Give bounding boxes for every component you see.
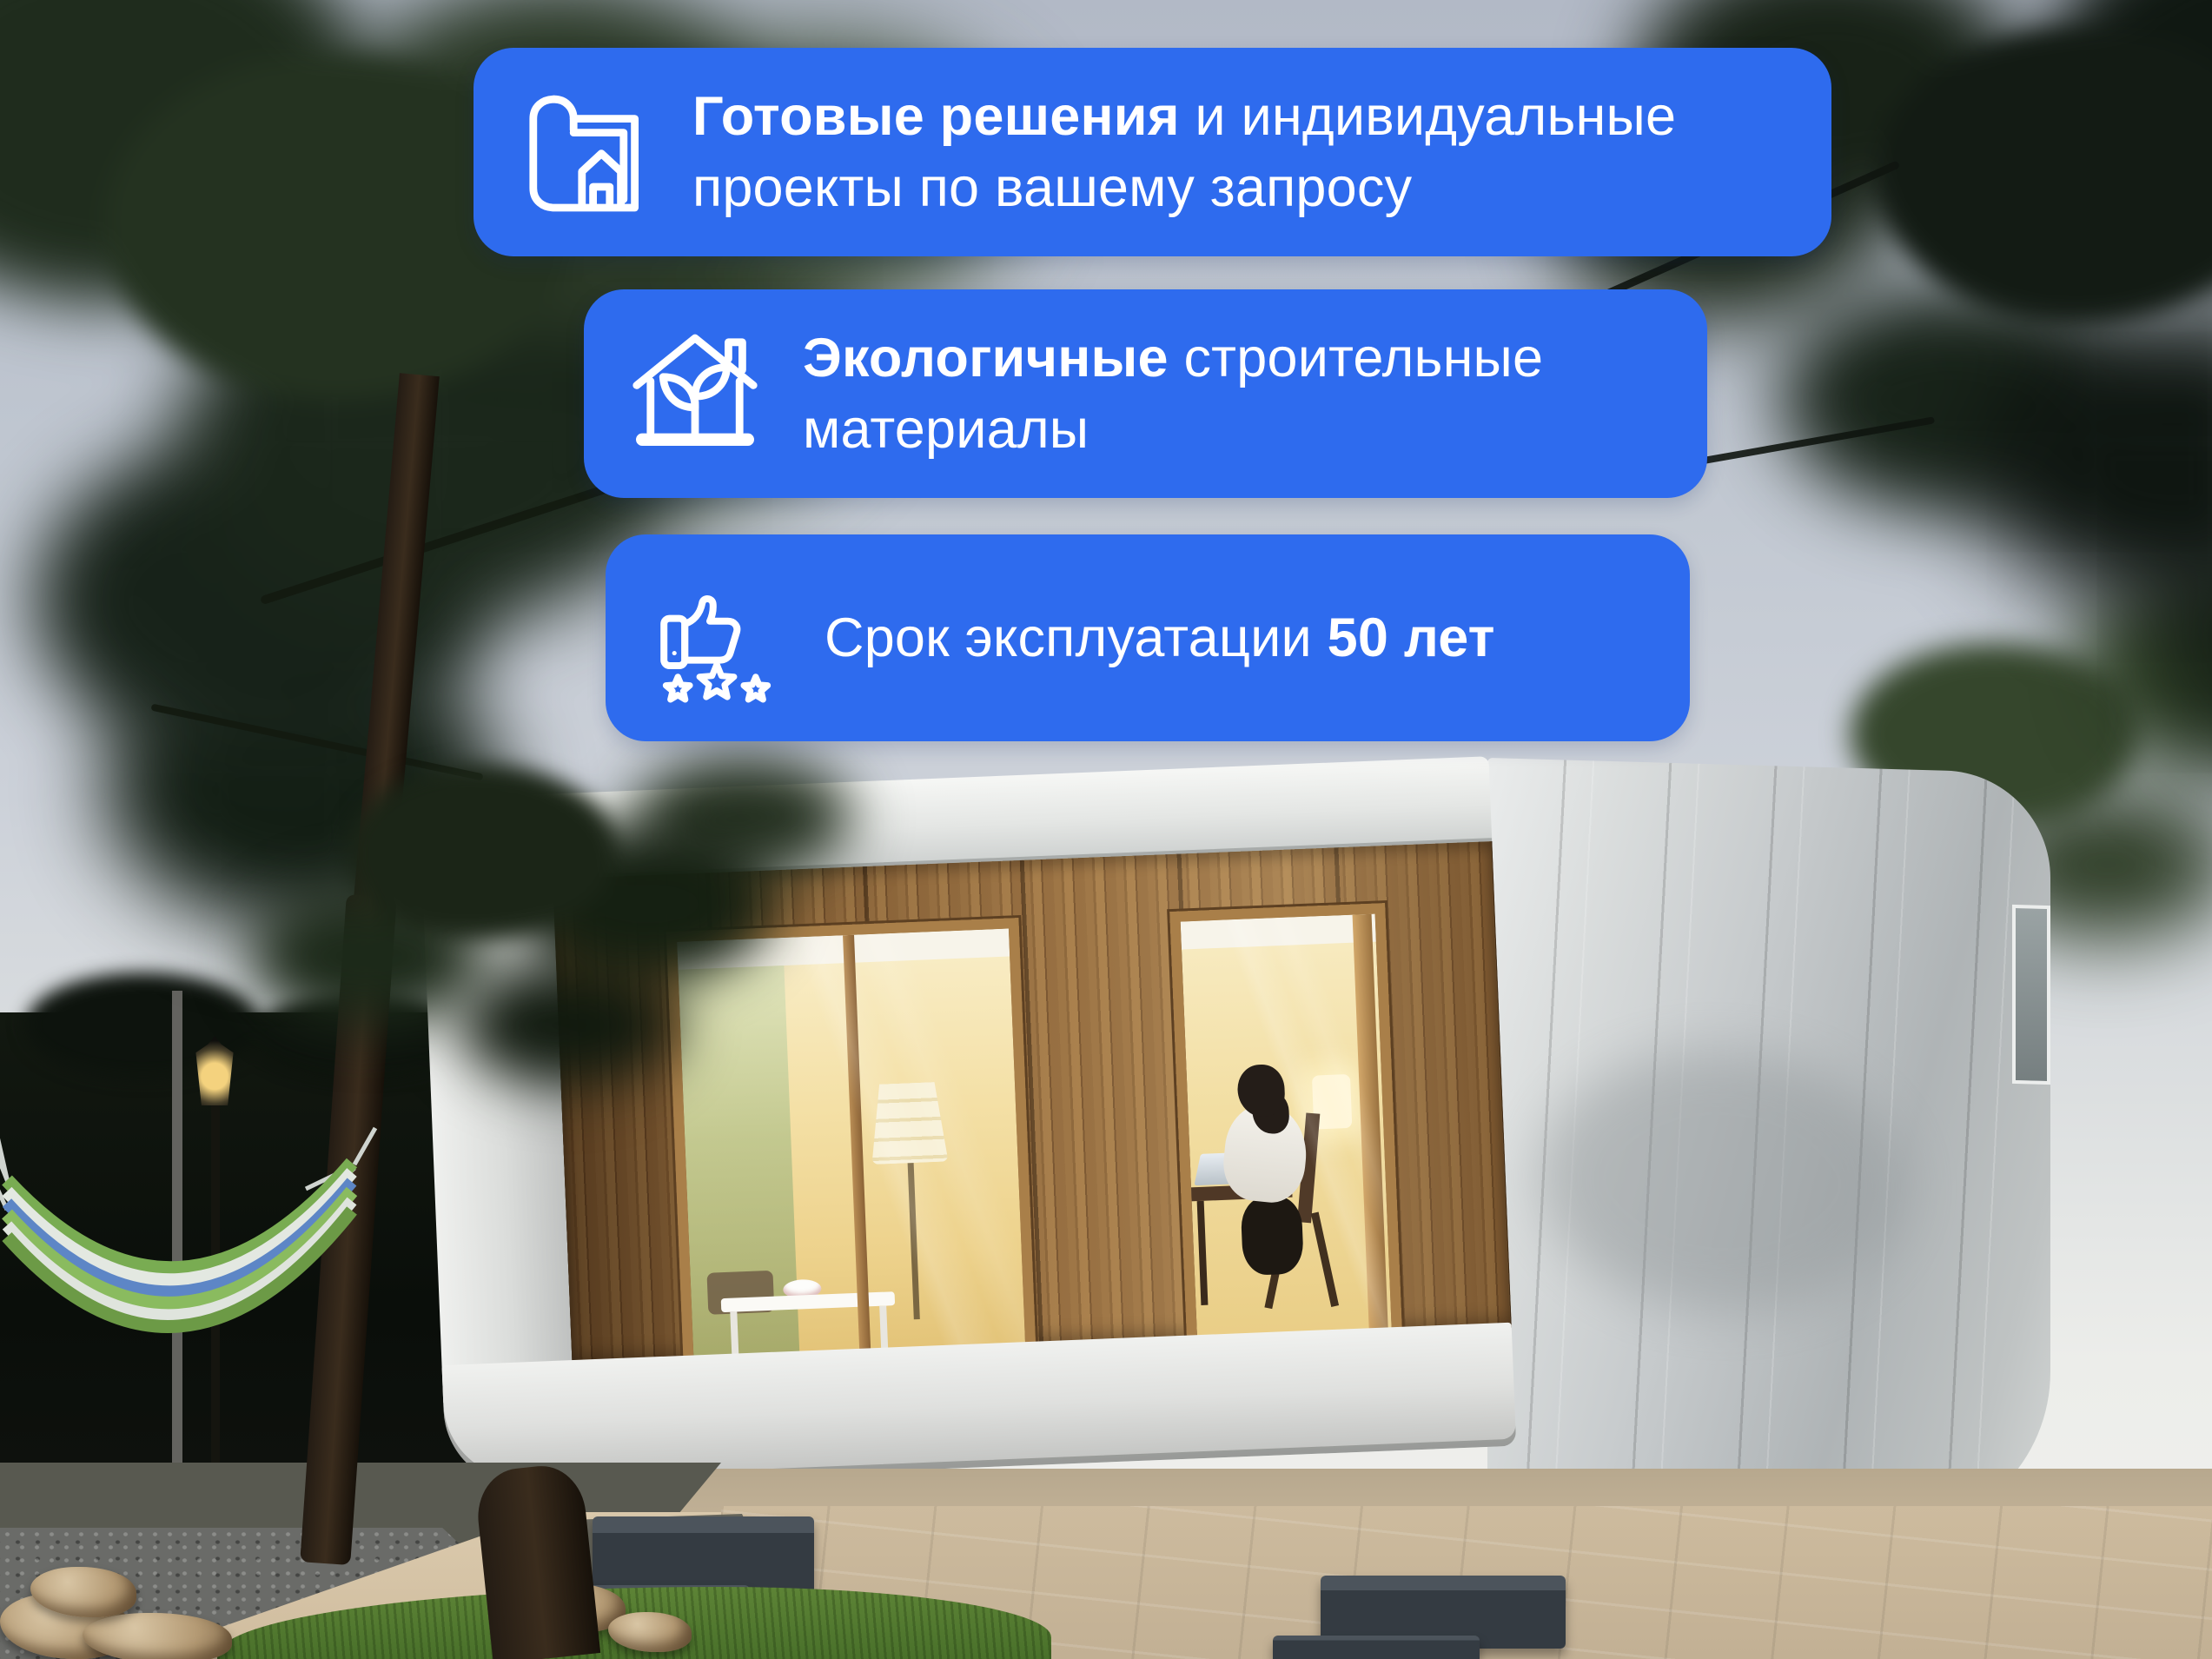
white-pillar	[422, 877, 573, 1404]
thumbs-up-stars-icon	[647, 568, 786, 707]
banner-text-regular: Срок эксплуатации	[825, 607, 1312, 668]
glass-door-left	[666, 918, 1036, 1382]
banner-lifespan: Срок эксплуатации 50 лет	[606, 534, 1690, 741]
wood-facade	[553, 841, 1512, 1365]
side-window	[2012, 905, 2050, 1085]
glass-reflection	[1181, 914, 1393, 1351]
banner-text: Экологичные строительные материалы	[803, 322, 1672, 465]
banner-solutions: Готовые решения и индивидуальные проекты…	[474, 48, 1831, 256]
promo-hero: Готовые решения и индивидуальные проекты…	[0, 0, 2212, 1659]
banner-text: Срок эксплуатации 50 лет	[825, 602, 1495, 674]
banner-text: Готовые решения и индивидуальные проекты…	[692, 81, 1797, 223]
eco-house-icon	[626, 324, 765, 463]
hammock	[0, 1078, 417, 1460]
blueprint-house-icon	[515, 83, 654, 222]
banner-eco: Экологичные строительные материалы	[584, 289, 1707, 498]
banner-text-bold: Готовые решения	[692, 86, 1180, 147]
overhanging-branches	[348, 765, 617, 939]
hammock-fabric	[7, 1163, 352, 1326]
glass-door-right	[1169, 903, 1403, 1362]
glass-reflection	[677, 929, 1026, 1371]
house-side-wall	[1487, 758, 2050, 1536]
banner-text-bold: Экологичные	[803, 328, 1169, 388]
entry-step	[1273, 1636, 1480, 1659]
banner-text-bold: 50 лет	[1328, 607, 1495, 668]
